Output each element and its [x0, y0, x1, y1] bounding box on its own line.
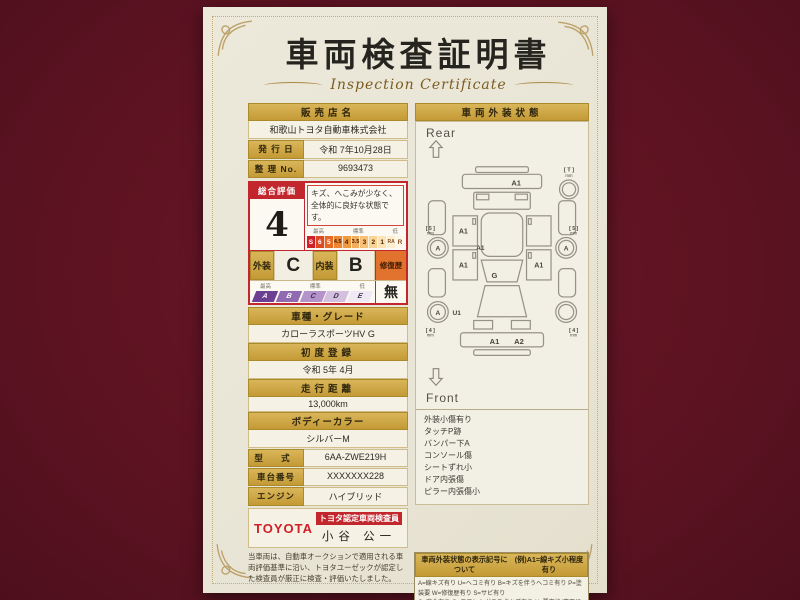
- chassis-no-value: XXXXXXX228: [304, 468, 408, 486]
- note-line: ピラー内張傷小: [424, 486, 580, 498]
- flourish-line: [264, 82, 322, 89]
- front-direction-label: Front: [426, 391, 588, 405]
- letter-cell: A: [252, 291, 278, 302]
- body-color-value: シルバーM: [248, 430, 408, 448]
- mark-front-bumper-left: A1: [490, 337, 500, 346]
- mark-rear-bumper: A1: [511, 179, 521, 188]
- engine-value: ハイブリッド: [304, 487, 408, 506]
- exterior-panel-header: 車両外装状態: [415, 103, 589, 121]
- first-reg-label: 初度登録: [248, 343, 408, 361]
- mileage-value: 13,000km: [248, 397, 408, 412]
- letter-cell: B: [276, 291, 302, 302]
- first-reg-value: 令和 5年 4月: [248, 361, 408, 379]
- certificate-subtitle: Inspection Certificate: [330, 77, 506, 93]
- note-line: タッチP跡: [424, 426, 580, 438]
- grade-cell: S: [307, 236, 316, 248]
- scale-label-high: 最高: [313, 227, 324, 235]
- grade-cell: 4.5: [334, 236, 343, 248]
- letter-cell: D: [323, 291, 349, 302]
- mark-left-door-front: A1: [459, 263, 468, 270]
- grade-cell: R: [396, 236, 404, 248]
- letter-cell: E: [347, 291, 373, 302]
- right-column: 車両外装状態 Rear: [415, 103, 589, 505]
- exterior-value: C: [274, 251, 313, 280]
- exterior-condition-panel: Rear: [415, 121, 589, 505]
- dealer-value: 和歌山トヨタ自動車株式会社: [248, 121, 408, 139]
- left-column: 販売店名 和歌山トヨタ自動車株式会社 発 行 日 令和 7年10月28日 整 理…: [248, 103, 408, 548]
- model-code-value: 6AA-ZWE219H: [304, 449, 408, 467]
- chassis-no-label: 車台番号: [248, 468, 304, 486]
- scale-label-mid: 標準: [353, 227, 364, 235]
- issue-date-label: 発 行 日: [248, 140, 304, 159]
- grade-cell: 6: [316, 236, 325, 248]
- evaluation-box: 総合評価 4 キズ、へこみが少なく、全体的に良好な状態です。 最高 標準 低: [248, 181, 408, 305]
- grade-cell: 3.5: [352, 236, 361, 248]
- scale-label-mid: 標準: [310, 282, 321, 290]
- letter-scale: A B C D E: [254, 291, 371, 302]
- repair-history-label: 修復歴: [375, 251, 406, 280]
- letter-cell: C: [299, 291, 325, 302]
- grade-scale: S 6 5 4.5 4 3.5 3 2 1 RA: [307, 236, 404, 248]
- legend-line: A=線キズ有り U=ヘコミ有り B=キズを伴うヘコミ有り P=塗装要 W=修復歴…: [418, 579, 585, 598]
- ref-no-value: 9693473: [304, 160, 408, 178]
- legend-header: 車両外装状態の表示記号について: [419, 555, 510, 575]
- repair-history-value: 無: [375, 281, 406, 303]
- model-grade-value: カローラスポーツHV G: [248, 325, 408, 343]
- ref-no-label: 整 理 No.: [248, 160, 304, 178]
- issue-date-value: 令和 7年10月28日: [304, 140, 408, 159]
- inspector-box: TOYOTA トヨタ認定車両検査員 小谷 公一: [248, 508, 408, 548]
- grade-cell: 5: [325, 236, 334, 248]
- eval-comment: キズ、へこみが少なく、全体的に良好な状態です。: [307, 185, 404, 226]
- dealer-label: 販売店名: [248, 103, 408, 121]
- mark-left-door-rear: A1: [459, 229, 468, 236]
- scale-label-low: 低: [392, 227, 398, 235]
- down-arrow-icon: [426, 368, 446, 386]
- mileage-label: 走行距離: [248, 379, 408, 397]
- scale-label-low: 低: [359, 282, 365, 290]
- note-line: ドア内張傷: [424, 474, 580, 486]
- mark-rr-wheel: A: [564, 246, 569, 253]
- mark-front-left-area: U1: [453, 310, 462, 317]
- flourish-line: [515, 82, 573, 89]
- grade-cell: 4: [343, 236, 352, 248]
- legend-box: 車両外装状態の表示記号について (例)A1=線キズ小程度有り A=線キズ有り U…: [414, 552, 589, 600]
- mark-right-door: A1: [534, 263, 543, 270]
- grade-cell: 3: [360, 236, 369, 248]
- overall-eval-value: 4: [250, 199, 304, 250]
- model-grade-label: 車種・グレード: [248, 307, 408, 325]
- photo-background: 車両検査証明書 Inspection Certificate 販売店名 和歌山ト…: [0, 0, 800, 600]
- scale-label-high: 最高: [260, 282, 271, 290]
- note-line: 外装小傷有り: [424, 414, 580, 426]
- grade-cell: 2: [369, 236, 378, 248]
- mark-unit: mm: [570, 333, 578, 338]
- inspector-name: 小谷 公一: [316, 528, 402, 544]
- rear-direction-label: Rear: [426, 126, 588, 140]
- interior-label: 内装: [313, 251, 337, 280]
- interior-value: B: [337, 251, 376, 280]
- mark-front-bumper-right: A2: [514, 337, 524, 346]
- car-diagram-svg: [ T ] mm A1 [ 5 ] mm [ 5 ] mm A A A1: [419, 163, 585, 363]
- inspector-cert-badge: トヨタ認定車両検査員: [316, 512, 402, 525]
- legend-example: (例)A1=線キズ小程度有り: [514, 555, 584, 575]
- mark-left-rocker: A1: [476, 245, 485, 252]
- exterior-label: 外装: [250, 251, 274, 280]
- mark-fl-wheel: A: [435, 310, 440, 317]
- note-line: バンパー下A: [424, 438, 580, 450]
- mark-unit: mm: [427, 231, 435, 236]
- mark-unit: mm: [565, 173, 573, 178]
- mark-unit: mm: [427, 333, 435, 338]
- engine-label: エンジン: [248, 487, 304, 506]
- mark-windshield: G: [492, 271, 498, 280]
- model-code-label: 型 式: [248, 449, 304, 467]
- auction-disclaimer: 当車両は、自動車オークションで適用される車両評価基準に沿い、トヨタユーゼックが認…: [248, 552, 406, 584]
- body-color-label: ボディーカラー: [248, 412, 408, 430]
- overall-eval-label: 総合評価: [250, 183, 304, 199]
- mark-rl-wheel: A: [435, 246, 440, 253]
- toyota-logo: TOYOTA: [254, 521, 316, 536]
- note-line: コンソール傷: [424, 450, 580, 462]
- grade-cell: RA: [387, 236, 396, 248]
- up-arrow-icon: [426, 140, 446, 158]
- car-diagram: [ T ] mm A1 [ 5 ] mm [ 5 ] mm A A A1: [416, 163, 588, 368]
- note-line: シートずれ小: [424, 462, 580, 474]
- certificate-title: 車両検査証明書: [248, 37, 589, 73]
- certificate-paper: 車両検査証明書 Inspection Certificate 販売店名 和歌山ト…: [203, 7, 607, 593]
- grade-cell: 1: [378, 236, 387, 248]
- condition-notes: 外装小傷有り タッチP跡 バンパー下A コンソール傷 シートずれ小 ドア内張傷 …: [416, 409, 588, 504]
- mark-unit: mm: [570, 231, 578, 236]
